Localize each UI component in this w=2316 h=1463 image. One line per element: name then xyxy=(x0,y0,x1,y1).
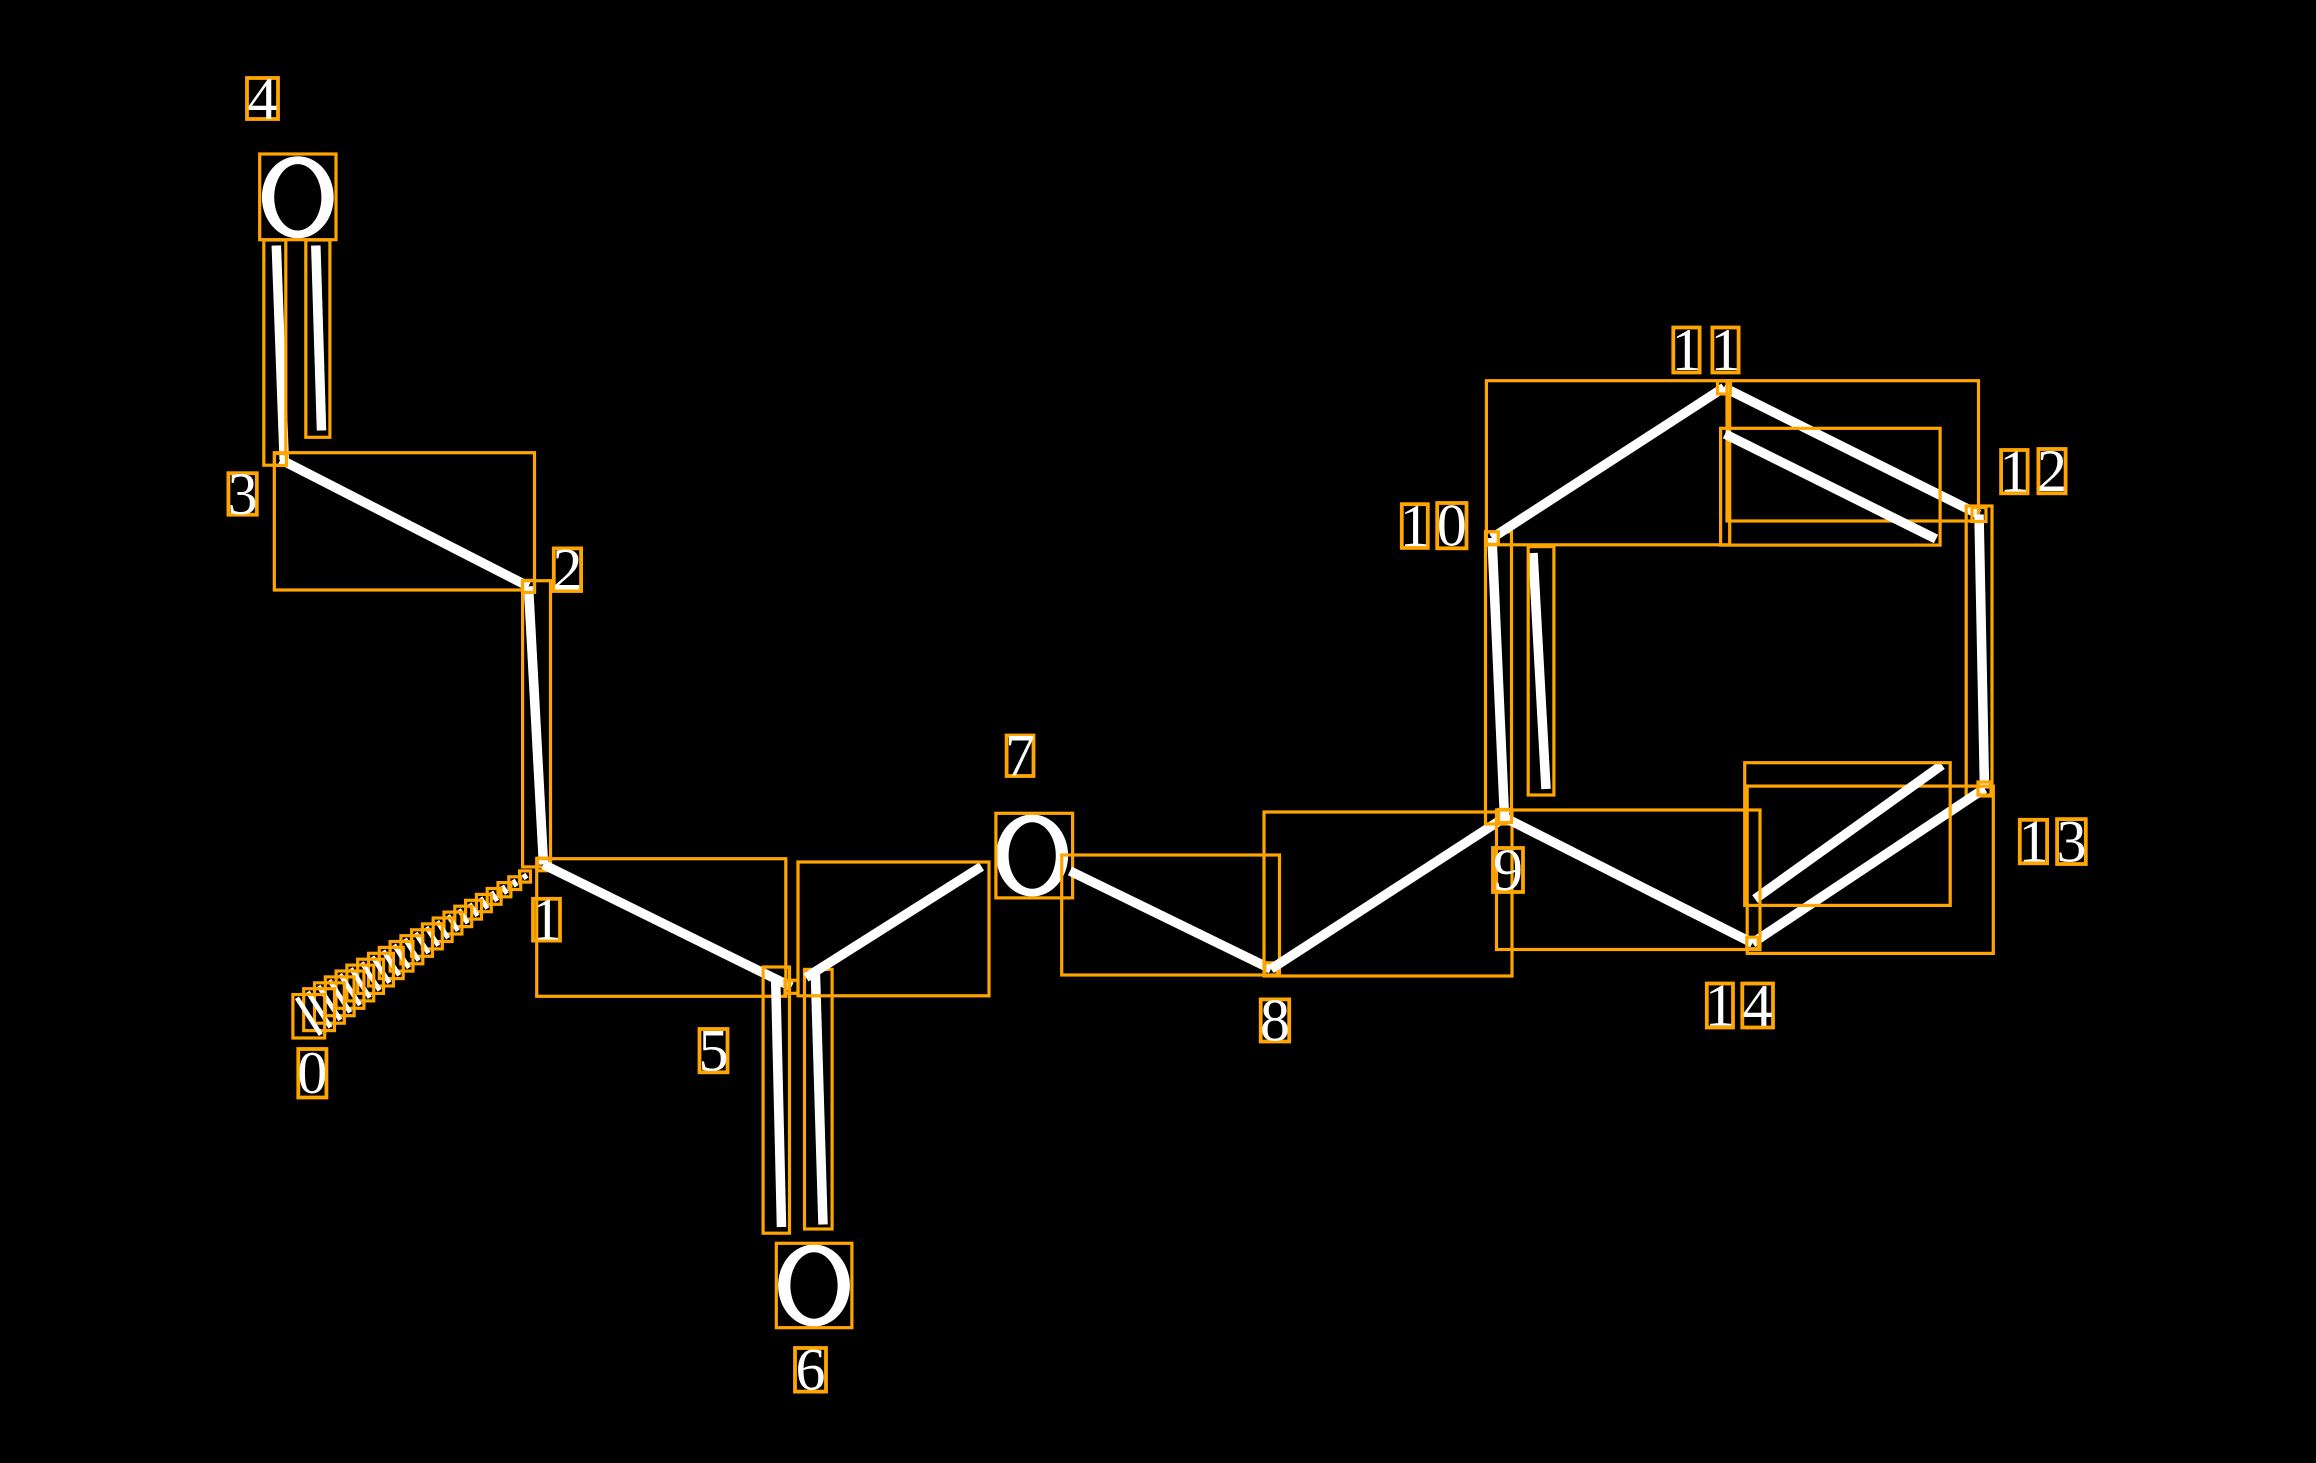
svg-text:1: 1 xyxy=(1705,973,1735,1039)
svg-text:3: 3 xyxy=(228,461,258,527)
svg-text:1: 1 xyxy=(1672,317,1702,383)
svg-text:9: 9 xyxy=(1493,837,1523,903)
svg-text:6: 6 xyxy=(796,1337,826,1403)
svg-text:2: 2 xyxy=(553,537,583,603)
svg-text:1: 1 xyxy=(2019,809,2049,875)
svg-text:7: 7 xyxy=(1005,723,1035,789)
svg-text:0: 0 xyxy=(1437,493,1467,559)
svg-text:4: 4 xyxy=(1743,973,1773,1039)
svg-text:3: 3 xyxy=(2057,809,2087,875)
svg-text:2: 2 xyxy=(2037,438,2067,504)
svg-text:1: 1 xyxy=(1999,439,2029,505)
svg-text:1: 1 xyxy=(1711,317,1741,383)
svg-text:1: 1 xyxy=(1400,493,1430,559)
svg-text:5: 5 xyxy=(699,1018,729,1084)
svg-text:0: 0 xyxy=(297,1040,327,1106)
svg-text:4: 4 xyxy=(248,66,278,132)
svg-text:8: 8 xyxy=(1260,988,1290,1054)
